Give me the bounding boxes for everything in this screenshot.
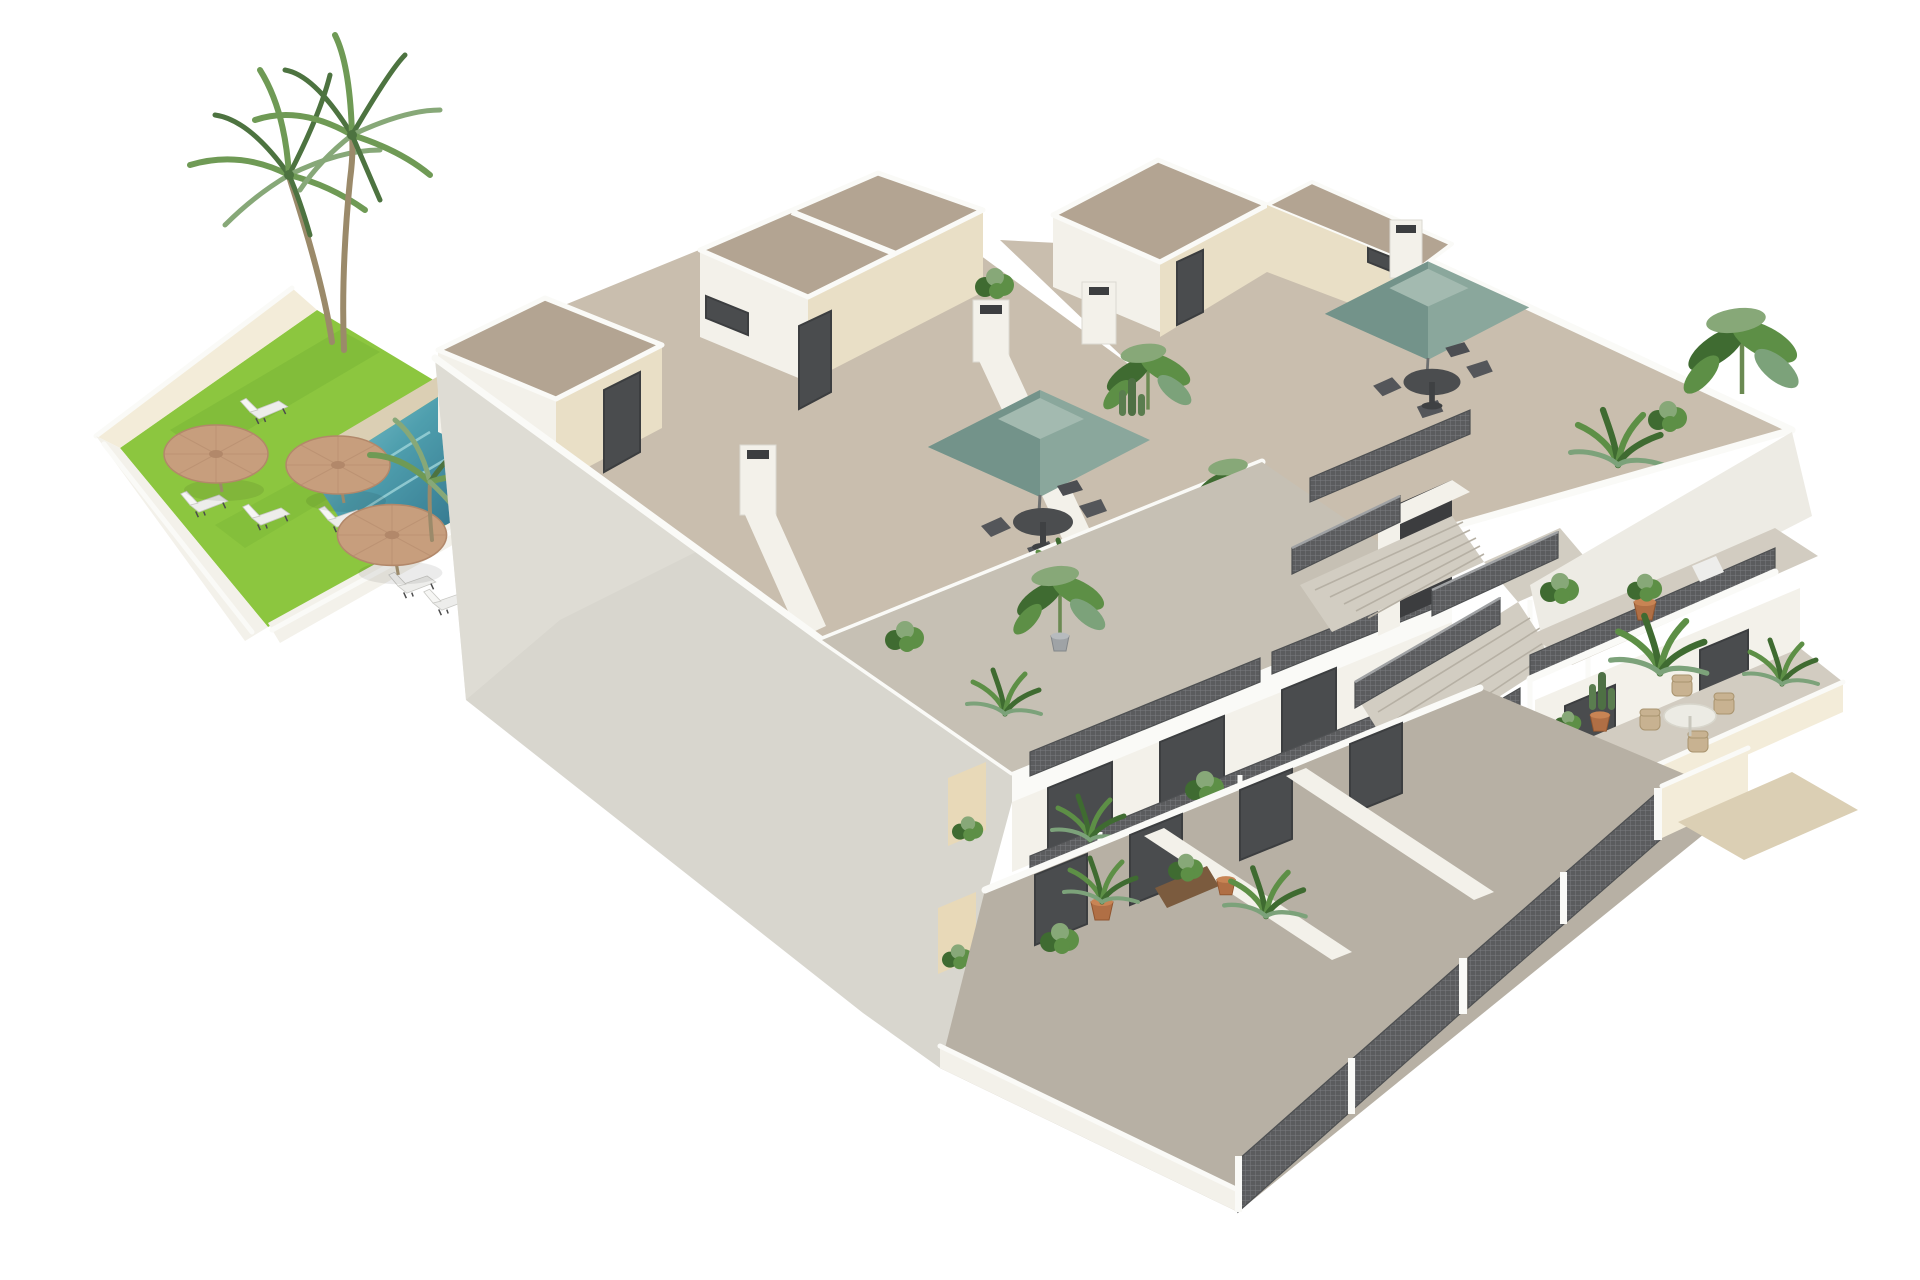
fence-post: [1560, 872, 1567, 924]
potted-plant: [1590, 711, 1610, 731]
fence-post: [1235, 1156, 1242, 1212]
fence-post: [1348, 1058, 1355, 1114]
potted-plant: [1217, 876, 1236, 895]
chimney: [1082, 282, 1116, 344]
fence-post: [1654, 788, 1662, 840]
architectural-render: [0, 0, 1920, 1280]
fence-post: [1459, 958, 1467, 1014]
penthouse-door: [1177, 250, 1203, 325]
potted-plant: [1051, 633, 1069, 652]
wicker-chair: [1714, 693, 1734, 714]
wicker-chair: [1672, 675, 1692, 696]
penthouse-door: [799, 311, 831, 409]
wicker-chair: [1640, 709, 1660, 730]
render-canvas: [0, 0, 1920, 1280]
